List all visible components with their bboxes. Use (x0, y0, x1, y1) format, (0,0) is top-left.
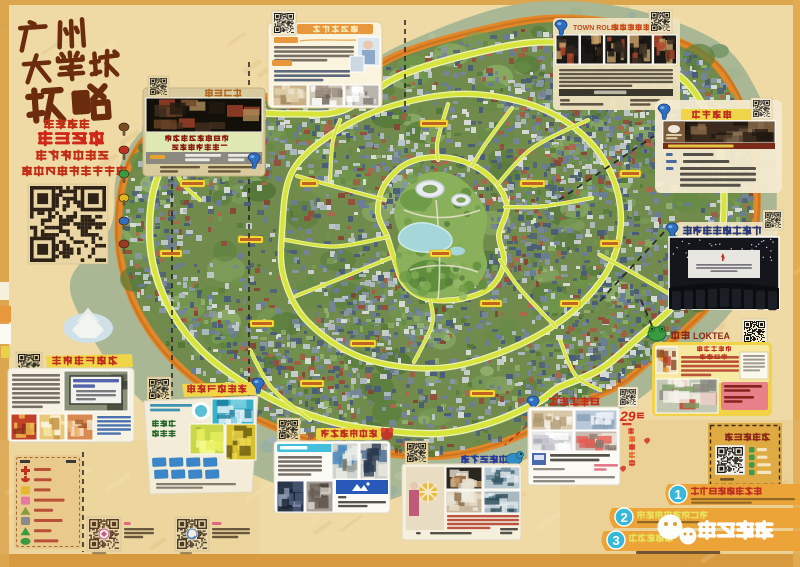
svg-text:3: 3 (613, 533, 620, 548)
svg-text:TOWN ROLL: TOWN ROLL (573, 25, 616, 32)
svg-text:LOKTEA: LOKTEA (693, 331, 730, 341)
svg-text:2: 2 (621, 510, 628, 525)
svg-text:1: 1 (675, 487, 682, 502)
svg-text:29: 29 (619, 408, 636, 424)
